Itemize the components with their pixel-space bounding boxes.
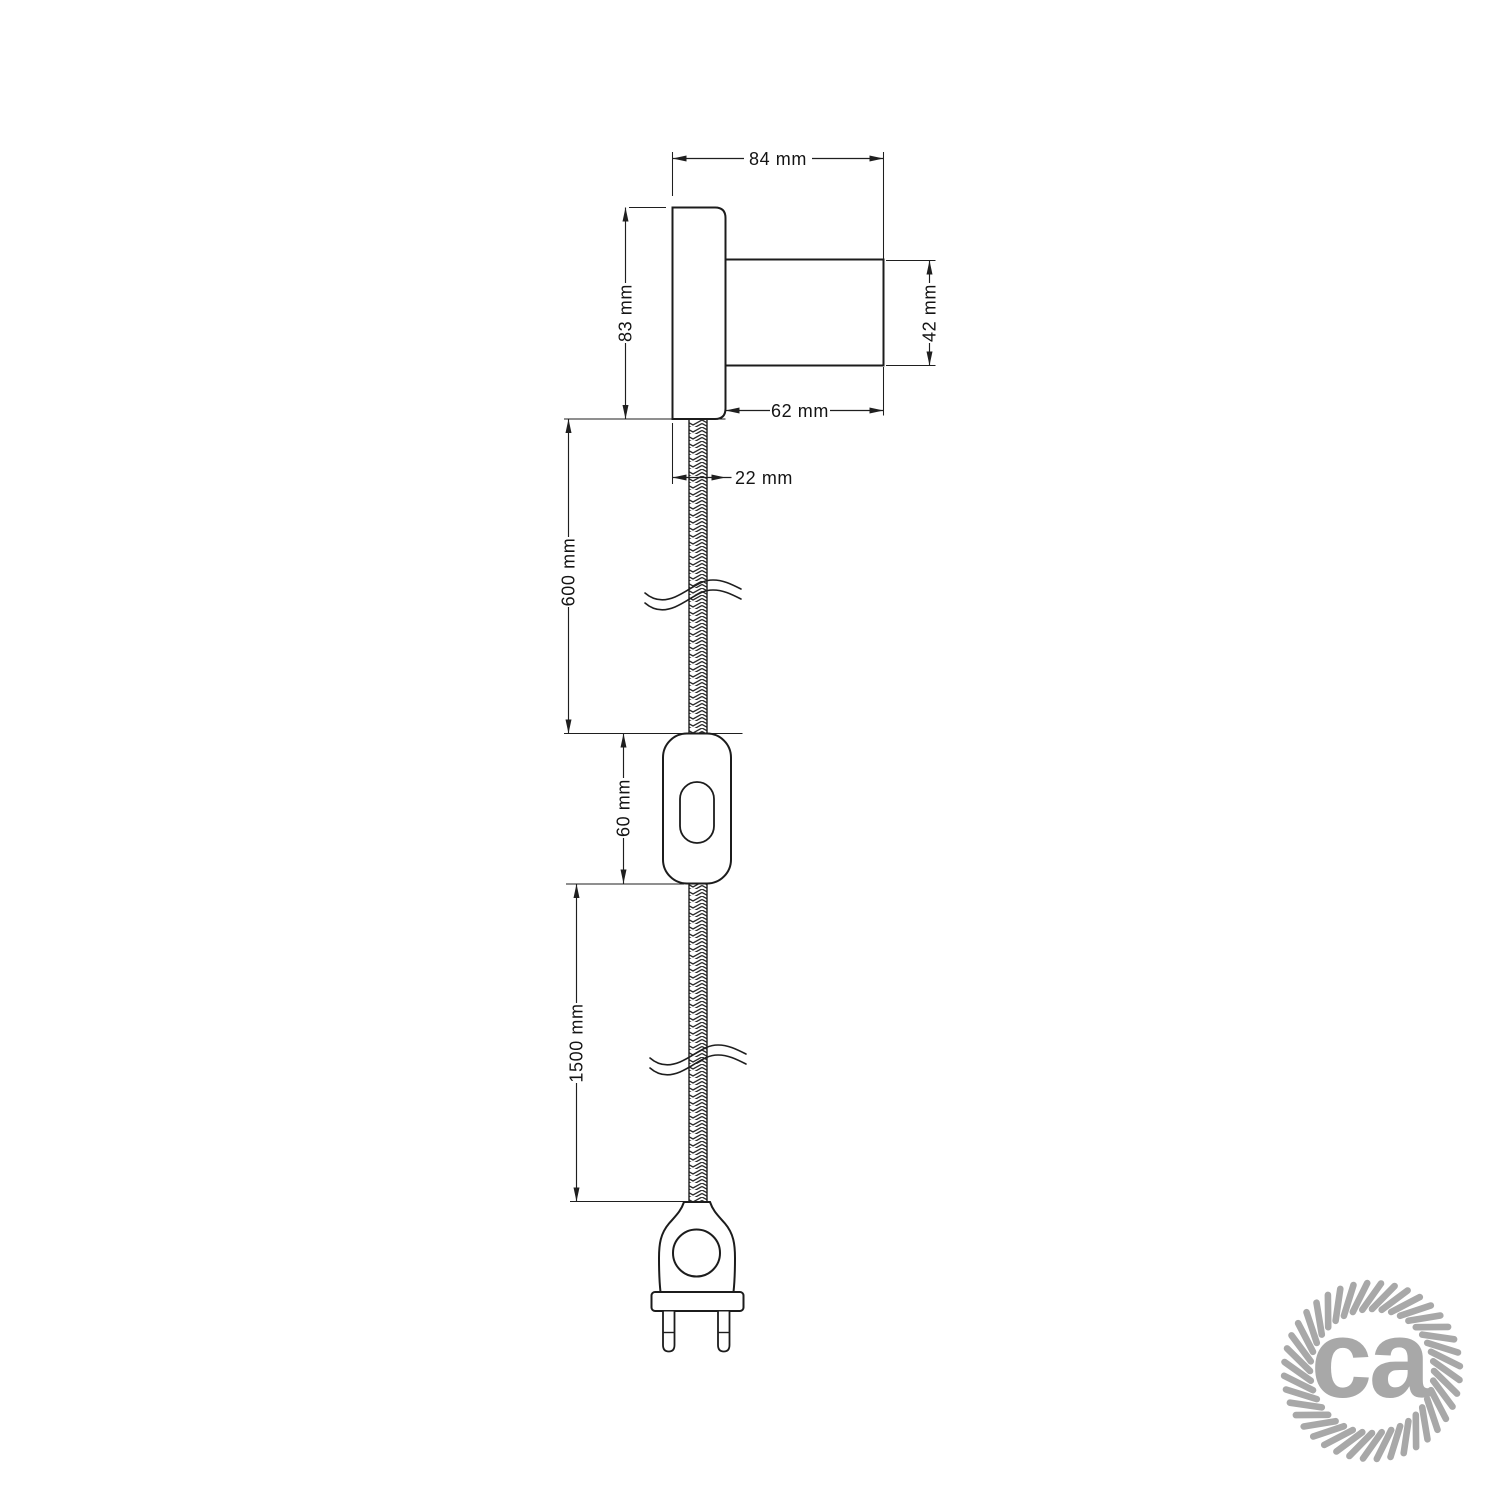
extension-lines <box>564 419 743 734</box>
arrow-right <box>870 156 884 162</box>
arrow-up <box>574 884 580 898</box>
arrow-up <box>566 419 572 433</box>
dimension-lower-cable: 1500 mm <box>566 884 684 1202</box>
dimension-drawing-page: 84 mm 83 mm 42 mm 62 mm <box>0 0 1500 1500</box>
upper-cable-braid <box>689 419 707 734</box>
plug-prong-left <box>663 1312 675 1352</box>
dimension-label-upper-cable: 600 mm <box>559 538 579 607</box>
dimension-plate-height: 83 mm <box>616 208 667 420</box>
plug-flange <box>652 1292 744 1311</box>
inline-switch <box>663 734 731 884</box>
arrow-up <box>623 208 629 222</box>
dimension-upper-cable: 600 mm <box>559 419 743 734</box>
power-plug <box>652 1202 744 1352</box>
dimension-holder-length: 62 mm <box>726 367 884 421</box>
plug-prongs <box>663 1312 730 1352</box>
dimension-label-overall-width: 84 mm <box>749 149 807 169</box>
arrow-down <box>927 352 933 366</box>
dimension-switch-length: 60 mm <box>614 734 634 884</box>
arrow-down <box>566 720 572 734</box>
plug-hole <box>673 1230 720 1277</box>
arrow-right <box>870 408 884 414</box>
rope-strand <box>1304 1421 1336 1426</box>
arrow-left <box>673 475 687 481</box>
lamp-holder <box>726 260 884 366</box>
upper-braided-cable <box>689 419 707 734</box>
arrow-down <box>574 1188 580 1202</box>
plug-prong-right <box>718 1312 730 1352</box>
brand-logo: ca <box>1284 1283 1460 1459</box>
dimension-label-plate-thickness: 22 mm <box>735 468 793 488</box>
lamp-dimension-diagram: 84 mm 83 mm 42 mm 62 mm <box>0 0 1500 1500</box>
arrow-up <box>927 261 933 275</box>
dimension-label-switch-length: 60 mm <box>614 779 634 837</box>
arrow-up <box>621 734 627 748</box>
arrow-left <box>673 156 687 162</box>
switch-rocker-button[interactable] <box>680 782 714 843</box>
dimension-holder-diameter: 42 mm <box>886 261 940 366</box>
rope-strand <box>1404 1421 1409 1453</box>
brand-logo-text: ca <box>1311 1298 1431 1421</box>
wall-plate <box>673 208 726 420</box>
arrow-left <box>726 408 740 414</box>
lower-braided-cable <box>689 884 707 1203</box>
arrow-right <box>712 475 726 481</box>
dimension-label-plate-height: 83 mm <box>616 284 636 342</box>
dimension-label-lower-cable: 1500 mm <box>567 1003 587 1082</box>
arrow-down <box>623 405 629 419</box>
dimension-label-holder-diameter: 42 mm <box>920 284 940 342</box>
lower-cable-braid <box>689 884 707 1203</box>
dimension-label-holder-length: 62 mm <box>771 401 829 421</box>
arrow-down <box>621 870 627 884</box>
